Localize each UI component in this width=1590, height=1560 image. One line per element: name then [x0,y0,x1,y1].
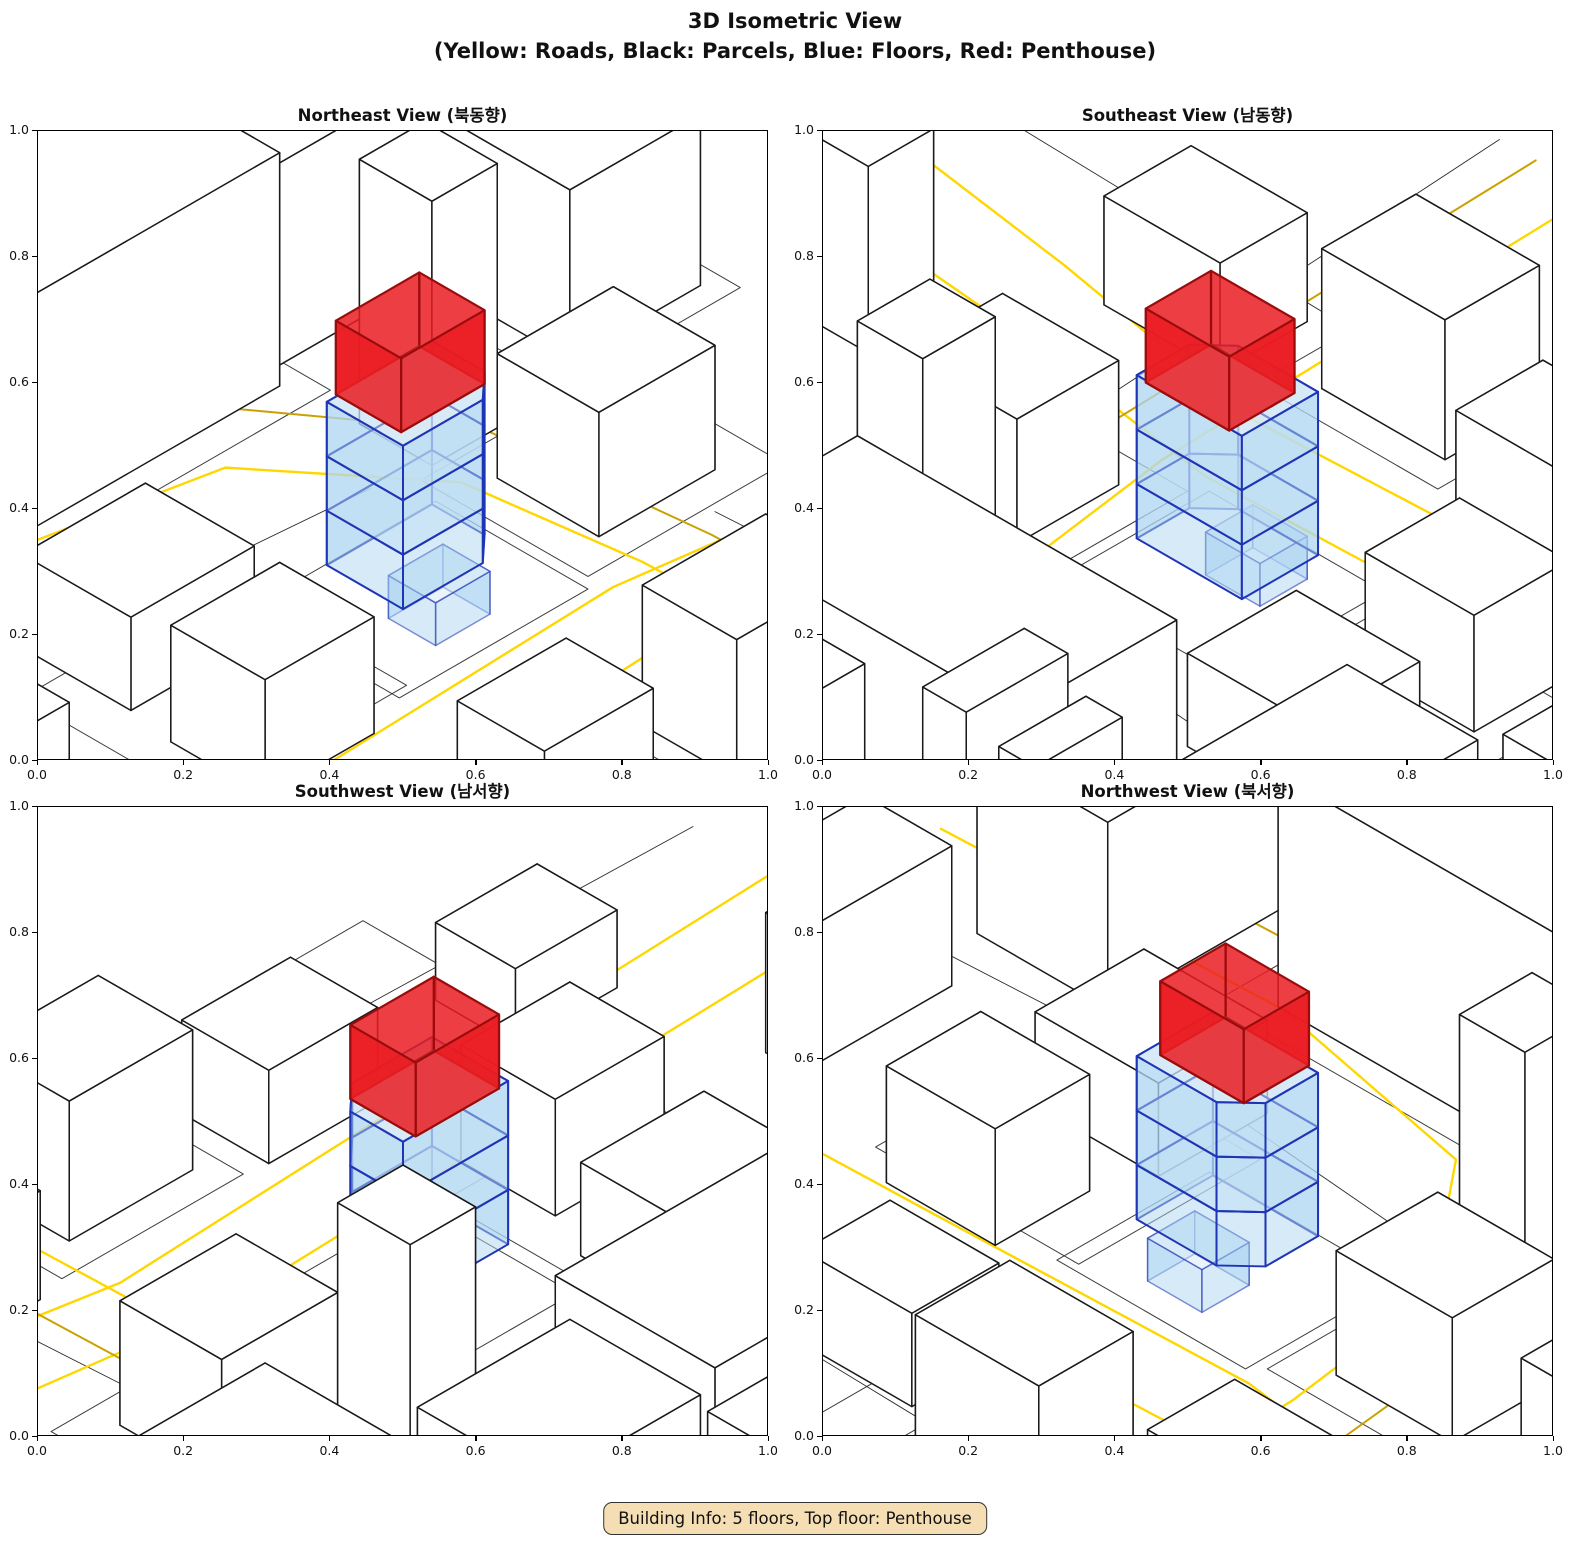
y-tick-label: 1.0 [0,122,29,137]
y-tick-label: 0.2 [0,1302,29,1317]
y-tick-mark [817,806,822,808]
subplot-southeast-view: Southeast View (남동향) 0.00.00.20.20.40.40… [822,130,1553,760]
x-tick-mark [183,760,185,765]
y-tick-label: 0.6 [0,374,29,389]
x-tick-mark [329,760,331,765]
y-tick-label: 1.0 [774,798,814,813]
x-tick-label: 0.6 [456,1443,496,1458]
subplot-title-northeast: Northeast View (북동향) [37,102,768,126]
y-tick-mark [817,382,822,384]
y-tick-label: 1.0 [774,122,814,137]
x-tick-label: 0.4 [1094,1443,1134,1458]
x-tick-label: 0.0 [17,1443,57,1458]
x-tick-label: 0.6 [1241,1443,1281,1458]
y-tick-label: 0.6 [0,1050,29,1065]
figure-title: 3D Isometric View (Yellow: Roads, Black:… [0,6,1590,66]
x-tick-label: 0.4 [309,1443,349,1458]
figure-title-line2: (Yellow: Roads, Black: Parcels, Blue: Fl… [0,36,1590,66]
y-tick-label: 0.8 [774,248,814,263]
plot-area-southeast [822,130,1553,760]
y-tick-mark [32,1310,37,1312]
y-tick-label: 0.4 [0,1176,29,1191]
plot-area-southwest [37,806,768,1436]
y-tick-mark [32,760,37,762]
x-tick-mark [1260,760,1262,765]
subplot-title-southeast: Southeast View (남동향) [822,102,1553,126]
x-tick-mark [1260,1436,1262,1441]
y-tick-label: 0.0 [0,1428,29,1443]
y-tick-mark [32,382,37,384]
plot-area-northwest [822,806,1553,1436]
x-tick-label: 0.0 [802,1443,842,1458]
y-tick-label: 0.8 [0,248,29,263]
y-tick-mark [32,256,37,258]
y-tick-mark [817,1436,822,1438]
building-info-box: Building Info: 5 floors, Top floor: Pent… [603,1502,987,1535]
x-tick-mark [968,1436,970,1441]
x-tick-mark [475,760,477,765]
subplot-northwest-view: Northwest View (북서향) 0.00.00.20.20.40.40… [822,806,1553,1436]
x-tick-mark [1406,1436,1408,1441]
x-tick-label: 0.8 [602,1443,642,1458]
y-tick-mark [817,130,822,132]
x-tick-mark [621,760,623,765]
x-tick-mark [1406,760,1408,765]
x-tick-mark [1553,1436,1555,1441]
y-tick-label: 0.2 [774,1302,814,1317]
y-tick-mark [32,634,37,636]
subplot-southwest-view: Southwest View (남서향) 0.00.00.20.20.40.40… [37,806,768,1436]
y-tick-mark [32,806,37,808]
x-tick-label: 1.0 [748,1443,788,1458]
y-tick-mark [32,1184,37,1186]
y-tick-label: 0.6 [774,1050,814,1065]
y-tick-label: 0.6 [774,374,814,389]
y-tick-mark [32,1436,37,1438]
y-tick-mark [817,932,822,934]
x-tick-label: 0.8 [1387,1443,1427,1458]
y-tick-label: 0.8 [774,924,814,939]
x-tick-label: 0.2 [948,1443,988,1458]
x-tick-mark [768,760,770,765]
y-tick-label: 1.0 [0,798,29,813]
plot-area-northeast [37,130,768,760]
subplot-title-southwest: Southwest View (남서향) [37,778,768,802]
y-tick-label: 0.4 [774,500,814,515]
y-tick-mark [817,256,822,258]
y-tick-mark [817,508,822,510]
x-tick-mark [183,1436,185,1441]
x-tick-mark [329,1436,331,1441]
x-tick-mark [968,760,970,765]
y-tick-mark [32,1058,37,1060]
figure-title-line1: 3D Isometric View [0,6,1590,36]
y-tick-mark [817,634,822,636]
subplot-title-northwest: Northwest View (북서향) [822,778,1553,802]
y-tick-mark [817,1310,822,1312]
y-tick-label: 0.2 [0,626,29,641]
x-tick-mark [1114,760,1116,765]
subplot-northeast-view: Northeast View (북동향) 0.00.00.20.20.40.40… [37,130,768,760]
y-tick-label: 0.0 [774,752,814,767]
y-tick-mark [817,1184,822,1186]
x-tick-mark [1553,760,1555,765]
x-tick-mark [475,1436,477,1441]
y-tick-mark [817,760,822,762]
x-tick-label: 0.2 [163,1443,203,1458]
y-tick-mark [32,932,37,934]
y-tick-label: 0.4 [774,1176,814,1191]
x-tick-label: 1.0 [1533,1443,1573,1458]
y-tick-label: 0.8 [0,924,29,939]
x-tick-mark [621,1436,623,1441]
x-tick-mark [1114,1436,1116,1441]
x-tick-mark [768,1436,770,1441]
y-tick-label: 0.0 [0,752,29,767]
y-tick-mark [32,508,37,510]
y-tick-label: 0.4 [0,500,29,515]
y-tick-mark [817,1058,822,1060]
y-tick-label: 0.2 [774,626,814,641]
y-tick-mark [32,130,37,132]
y-tick-label: 0.0 [774,1428,814,1443]
